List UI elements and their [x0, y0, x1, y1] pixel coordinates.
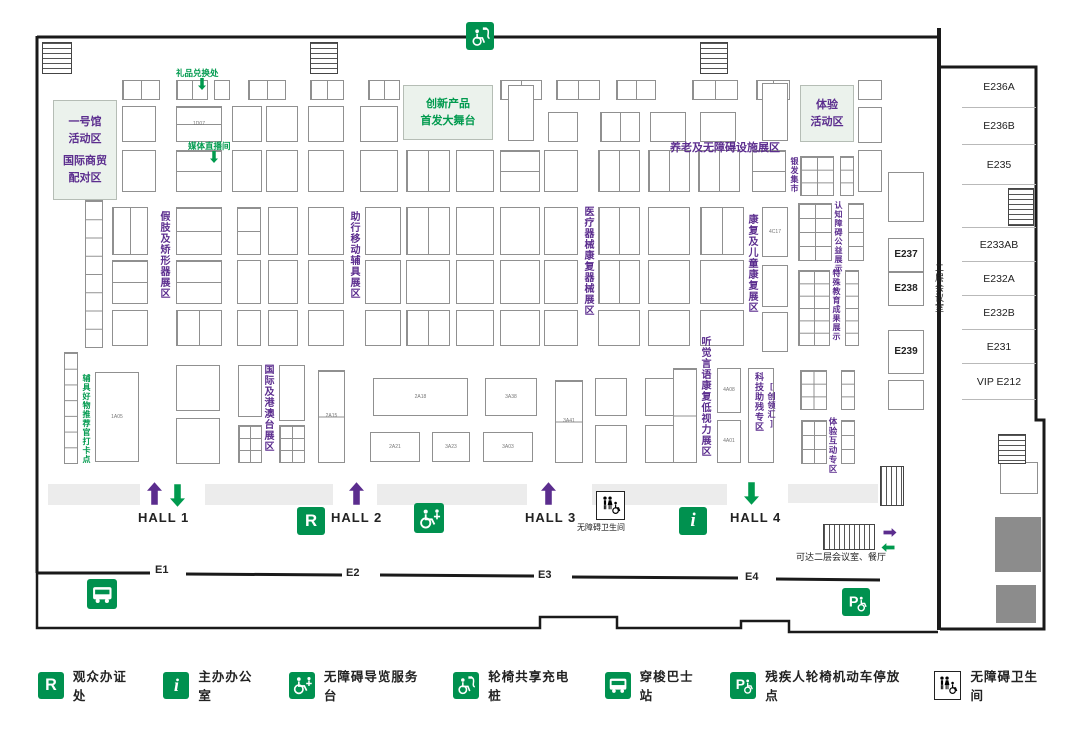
zone-line: 体验: [816, 97, 838, 114]
zone-label: 可达二层会议室、餐厅: [796, 550, 886, 563]
booth: [762, 265, 788, 307]
booth: [858, 80, 882, 100]
booth: [406, 260, 450, 304]
booth: [648, 150, 690, 192]
svg-text:P: P: [848, 594, 858, 610]
booth: [700, 260, 744, 304]
booth: [176, 418, 220, 464]
booth: 2A18: [373, 378, 468, 416]
booth: [544, 207, 578, 255]
zone-label: 认知障碍公益展示: [833, 201, 844, 273]
booth: [598, 150, 640, 192]
room-e236a: E236A: [962, 67, 1036, 108]
booth-label: 4A08: [723, 388, 735, 393]
booth: [762, 312, 788, 352]
zone-line: 创新产品: [426, 96, 470, 113]
booth: [648, 310, 690, 346]
charge-icon: [466, 22, 494, 50]
stairs-icon: [1008, 188, 1034, 226]
entrance-label: E2: [346, 567, 359, 579]
booth: [176, 365, 220, 411]
booth: 2A21: [370, 432, 420, 462]
legend-label: 残疾人轮椅机动车停放点: [765, 666, 907, 704]
activity-zone: 创新产品首发大舞台: [403, 85, 493, 140]
booth: [112, 207, 148, 255]
booth: [268, 207, 298, 255]
booth: [232, 150, 262, 192]
legend-item: 穿梭巴士站: [605, 666, 704, 704]
zone-label: 辅具好物推荐官打卡点: [81, 374, 92, 464]
booth: [365, 260, 401, 304]
legend-label: 无障碍卫生间: [970, 666, 1048, 704]
entrance-label: E1: [155, 564, 168, 576]
booth: [762, 83, 788, 141]
booth: [237, 207, 261, 255]
booth: [500, 310, 540, 346]
zone-label: 医疗器械康复器械展区: [580, 206, 595, 316]
booth: [700, 112, 736, 142]
aisle-bar: [377, 484, 527, 505]
activity-zone: 一号馆活动区国际商贸配对区: [53, 100, 117, 200]
r-icon: R: [297, 507, 325, 535]
booth: [598, 260, 640, 304]
escalator-icon: [823, 524, 875, 550]
zone-line: 配对区: [69, 170, 102, 187]
booth: [598, 207, 640, 255]
i-icon: i: [163, 672, 189, 699]
hall-label: HALL 3: [525, 510, 576, 525]
booth: [556, 80, 600, 100]
zone-label: [创领汇]: [766, 382, 777, 429]
legend-label: 观众办证处: [73, 666, 138, 704]
booth: [310, 80, 344, 100]
booth: [237, 310, 261, 346]
booth-label: 2A21: [389, 445, 401, 450]
booth: [648, 207, 690, 255]
zone-label: 银发集市: [789, 157, 800, 193]
booth-label: 3A03: [502, 445, 514, 450]
aisle-bar: [48, 484, 140, 505]
booth: E238: [888, 272, 924, 306]
booth-label: E239: [894, 347, 917, 357]
down-arrow-small: [210, 150, 218, 168]
booth: 4A08: [717, 368, 741, 413]
booth: [798, 270, 830, 346]
zone-label: 科技助残专区: [753, 372, 766, 432]
booth: [308, 207, 344, 255]
legend: R观众办证处i主办办公室无障碍导览服务台轮椅共享充电桩穿梭巴士站P残疾人轮椅机动…: [38, 666, 1048, 704]
booth-label: 1A05: [111, 415, 123, 420]
legend-label: 穿梭巴士站: [640, 666, 705, 704]
booth: [406, 150, 450, 192]
svg-text:P: P: [736, 676, 745, 692]
zone-label: 养老及无障碍设施展区: [670, 139, 780, 155]
hall-up-arrow: [147, 482, 162, 510]
booth: [616, 80, 656, 100]
zone-label: 二层会议室: [933, 263, 946, 313]
booth: [845, 270, 859, 346]
booth: [406, 207, 450, 255]
zone-label: 国际及港澳台展区: [260, 364, 275, 452]
booth: [1000, 462, 1038, 494]
booth: [595, 425, 627, 463]
charge-icon: [453, 672, 479, 699]
booth: [368, 80, 400, 100]
legend-item: R观众办证处: [38, 666, 137, 704]
room-e235: E235: [962, 145, 1036, 185]
r-glyph: R: [305, 511, 317, 531]
booth: [268, 310, 298, 346]
booth-label: 3A38: [505, 395, 517, 400]
booth: [841, 420, 855, 464]
zone-label: 假肢及矫形器展区: [156, 211, 171, 299]
booth: [752, 150, 786, 192]
booth: [848, 203, 864, 261]
booth: [500, 260, 540, 304]
booth: [840, 156, 854, 196]
conference-room-list: E236AE236BE235E233ABE232AE232BE231VIP E2…: [962, 67, 1036, 400]
booth: [122, 106, 156, 142]
booth: [308, 106, 344, 142]
bus-icon: [87, 579, 117, 609]
booth: [456, 207, 494, 255]
booth: [406, 310, 450, 346]
booth: 2A15: [318, 370, 345, 463]
entrance-label: E4: [745, 571, 758, 583]
booth-label: E238: [894, 284, 917, 294]
booth: [176, 207, 222, 255]
stairs-icon: [998, 434, 1026, 464]
booth: [841, 370, 855, 410]
aisle-bar: [205, 484, 333, 505]
legend-item: P残疾人轮椅机动车停放点: [730, 666, 907, 704]
booth: [801, 420, 827, 464]
floor-plan: E236AE236BE235E233ABE232AE232BE231VIP E2…: [0, 0, 1080, 734]
booth: [548, 112, 578, 142]
booth: [595, 378, 627, 416]
zone-label: 助行移动辅具展区: [346, 211, 361, 299]
booth: [238, 365, 262, 417]
booth: [112, 310, 148, 346]
booth: [308, 260, 344, 304]
booth: [456, 310, 494, 346]
booth-label: 2A15: [326, 414, 338, 419]
stairs-icon: [700, 42, 728, 74]
legend-item: 轮椅共享充电桩: [453, 666, 578, 704]
booth: [598, 310, 640, 346]
booth: [500, 150, 540, 192]
booth: [648, 260, 690, 304]
zone-line: 国际商贸: [63, 153, 107, 170]
guide-icon: [414, 503, 444, 533]
booth: [279, 365, 305, 421]
booth-label: 2A18: [415, 395, 427, 400]
booth: [544, 150, 578, 192]
room-e236b: E236B: [962, 108, 1036, 145]
i-icon: i: [679, 507, 707, 535]
booth: [176, 310, 222, 346]
booth: [266, 150, 298, 192]
booth: [360, 106, 398, 142]
i-glyph: i: [174, 675, 179, 696]
booth: [232, 106, 262, 142]
booth: [544, 260, 578, 304]
booth-label: 4C17: [769, 230, 781, 235]
toilet-icon: [596, 491, 625, 520]
activity-zone: 体验活动区: [800, 85, 854, 142]
booth: [500, 207, 540, 255]
booth-label: E237: [894, 250, 917, 260]
booth: 4A01: [717, 420, 741, 463]
legend-item: i主办办公室: [163, 666, 262, 704]
booth: 1D07: [176, 106, 222, 142]
hall-up-arrow: [541, 482, 556, 510]
booth-label: 3A41: [563, 419, 575, 424]
booth: [888, 172, 924, 222]
booth: [508, 85, 534, 141]
hall-up-arrow: [349, 482, 364, 510]
legend-item: 无障碍卫生间: [934, 666, 1048, 704]
r-icon: R: [38, 672, 64, 699]
room-vip-e212: VIP E212: [962, 364, 1036, 400]
zone-label: 无障碍卫生间: [577, 522, 625, 533]
booth: [360, 150, 398, 192]
booth: [365, 207, 401, 255]
booth: 3A03: [483, 432, 533, 462]
legend-label: 主办办公室: [198, 666, 263, 704]
stairs-icon: [310, 42, 338, 74]
r-glyph: R: [45, 676, 57, 695]
zone-line: 活动区: [69, 131, 102, 148]
booth: [64, 352, 78, 464]
booth: [798, 203, 832, 261]
booth: [122, 150, 156, 192]
zone-label: 特殊教育成果展示: [831, 269, 842, 341]
aisle-bar: [788, 484, 878, 503]
toilet-icon: [934, 671, 962, 700]
booth: [248, 80, 286, 100]
p-icon: P: [842, 588, 870, 616]
booth: [268, 260, 298, 304]
hall-down-arrow: [744, 482, 759, 510]
booth: [692, 80, 738, 100]
service-block: [995, 517, 1041, 572]
booth: [456, 150, 494, 192]
booth: E239: [888, 330, 924, 374]
booth: [365, 310, 401, 346]
booth: 3A23: [432, 432, 470, 462]
zone-label: 听觉言语康复低视力展区: [697, 336, 712, 457]
hall-down-arrow: [170, 484, 185, 512]
legend-label: 轮椅共享充电桩: [488, 666, 579, 704]
zone-label: 体验互动专区: [827, 417, 839, 474]
down-arrow-small: [198, 77, 206, 95]
room-e231: E231: [962, 330, 1036, 364]
booth: [112, 260, 148, 304]
booth: [237, 260, 261, 304]
booth: [700, 207, 744, 255]
booth: [698, 150, 740, 192]
booth: [176, 260, 222, 304]
booth: [600, 112, 640, 142]
booth: [456, 260, 494, 304]
entrance-label: E3: [538, 569, 551, 581]
room-e232b: E232B: [962, 296, 1036, 330]
hall-label: HALL 4: [730, 510, 781, 525]
booth: 3A41: [555, 380, 583, 463]
booth-label: 1D07: [193, 122, 205, 127]
booth: [800, 156, 834, 196]
booth: [122, 80, 160, 100]
stairs-icon: [42, 42, 72, 74]
booth: 3A38: [485, 378, 537, 416]
booth: E237: [888, 238, 924, 272]
booth-label: 3A23: [445, 445, 457, 450]
room-e232a: E232A: [962, 262, 1036, 296]
booth: [673, 368, 697, 463]
booth: 1A05: [95, 372, 139, 462]
booth: [858, 107, 882, 143]
booth: [238, 425, 262, 463]
booth-label: 4A01: [723, 439, 735, 444]
room-e233ab: E233AB: [962, 228, 1036, 262]
zone-line: 活动区: [811, 114, 844, 131]
booth: [858, 150, 882, 192]
booth: [888, 380, 924, 410]
booth: 4C17: [762, 207, 788, 257]
service-block: [996, 585, 1036, 623]
hall-label: HALL 1: [138, 510, 189, 525]
booth: [214, 80, 230, 100]
booth: [800, 370, 827, 410]
zone-label: 康复及儿童康复展区: [744, 214, 759, 313]
escalator-left-arrow: [878, 541, 898, 559]
booth: [85, 200, 103, 348]
legend-label: 无障碍导览服务台: [324, 666, 428, 704]
booth: [308, 150, 344, 192]
escalator-icon: [880, 466, 904, 506]
zone-line: 一号馆: [69, 114, 102, 131]
hall-label: HALL 2: [331, 510, 382, 525]
booth: [650, 112, 686, 142]
booth: [279, 425, 305, 463]
legend-item: 无障碍导览服务台: [289, 666, 427, 704]
i-glyph: i: [690, 510, 695, 532]
booth: [308, 310, 344, 346]
bus-icon: [605, 672, 631, 699]
p-icon: P: [730, 672, 756, 699]
booth: [544, 310, 578, 346]
zone-line: 首发大舞台: [421, 113, 476, 130]
booth: [266, 106, 298, 142]
guide-icon: [289, 672, 315, 699]
